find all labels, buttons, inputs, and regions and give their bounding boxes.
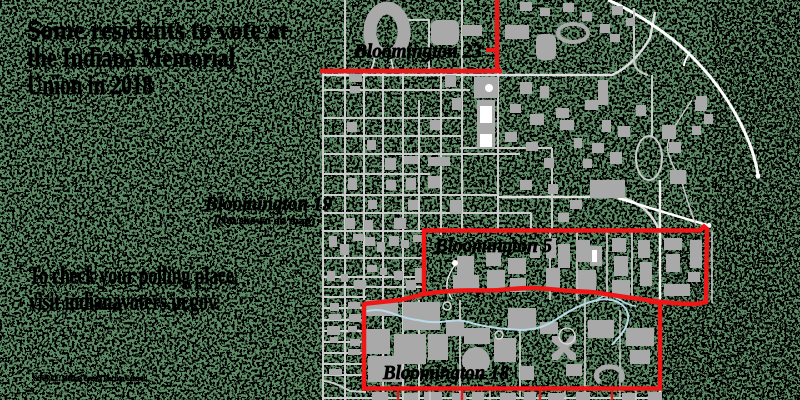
svg-text:Union in 2018: Union in 2018 — [27, 70, 153, 100]
svg-text:Bloomington 18: Bloomington 18 — [382, 362, 509, 384]
svg-text:visit indianavoters.in.gov.: visit indianavoters.in.gov. — [29, 289, 220, 316]
svg-text:(Not shown on map): (Not shown on map) — [214, 216, 315, 227]
svg-text:Bloomington 19: Bloomington 19 — [204, 193, 332, 215]
svg-text:To check your polling place,: To check your polling place, — [29, 263, 238, 290]
svg-text:Bloomington 23: Bloomington 23 — [353, 41, 482, 63]
svg-text:Some residents to vote at: Some residents to vote at — [27, 15, 288, 45]
svg-text:SOURCE: Monroe County Election: SOURCE: Monroe County Election Central — [34, 374, 146, 383]
svg-text:the Indiana Memorial: the Indiana Memorial — [27, 43, 235, 73]
svg-text:Bloomington 5: Bloomington 5 — [434, 235, 552, 257]
